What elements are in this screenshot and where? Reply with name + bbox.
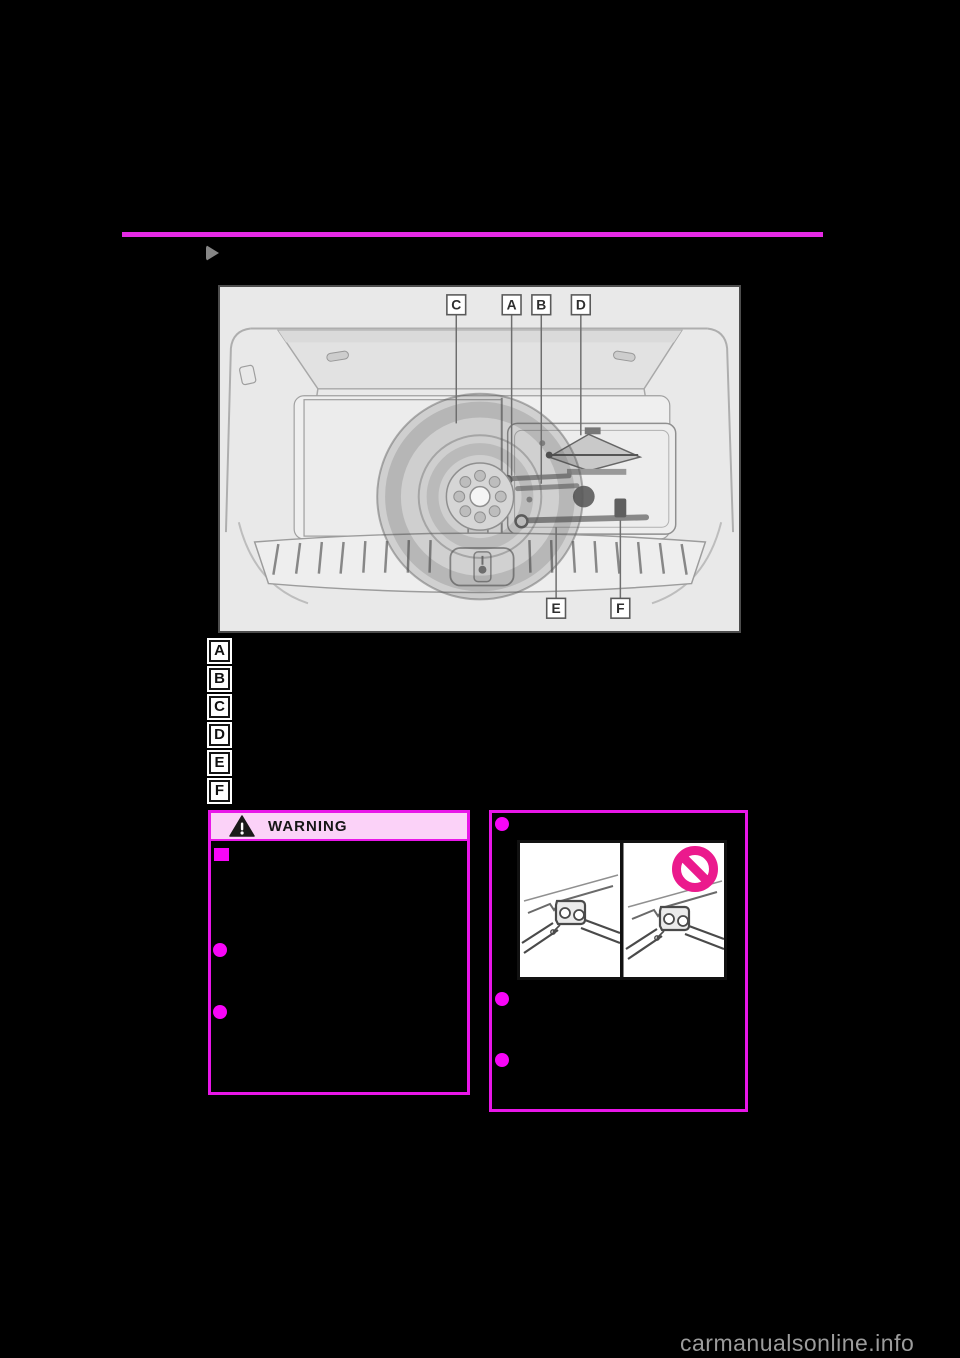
trunk-illustration: C A B D E F [220, 287, 739, 631]
warning-bullet-2 [213, 1005, 227, 1019]
callout-label-b: B [536, 297, 546, 313]
warning-header: WARNING [211, 813, 467, 841]
incorrect-jack-panel [626, 881, 724, 959]
legend-item-e: E [209, 752, 230, 774]
panel-divider [620, 843, 624, 977]
correct-jack-panel [522, 875, 620, 953]
warning-box: WARNING [208, 810, 470, 1095]
info-bullet-2 [495, 992, 509, 1006]
spare-tire [377, 394, 583, 600]
section-square-bullet [214, 848, 229, 861]
manual-page: C A B D E F A B C D E F W [0, 0, 960, 1358]
warning-title: WARNING [268, 818, 348, 835]
legend-item-b: B [209, 668, 230, 690]
callout-label-f: F [616, 600, 624, 616]
legend-item-d: D [209, 724, 230, 746]
callout-label-c: C [451, 297, 461, 313]
legend-item-c: C [209, 696, 230, 718]
warning-triangle-icon [229, 815, 255, 837]
info-bullet-3 [495, 1053, 509, 1067]
legend-item-a: A [209, 640, 230, 662]
info-bullet-1 [495, 817, 509, 831]
section-divider-rule [122, 232, 823, 237]
callout-label-d: D [576, 297, 586, 313]
jack-placement-svg [520, 843, 724, 977]
callout-label-e: E [551, 600, 560, 616]
trunk-tools-diagram: C A B D E F [218, 285, 741, 633]
triangle-right-icon [206, 245, 219, 261]
watermark-text: carmanualsonline.info [680, 1330, 950, 1357]
jack-caution-content [492, 813, 745, 1109]
jack-placement-illustration [517, 840, 727, 980]
warning-content [211, 841, 467, 1090]
callout-label-a: A [507, 297, 517, 313]
warning-bullet-1 [213, 943, 227, 957]
parcel-shelf [278, 330, 681, 388]
legend-item-f: F [209, 780, 230, 802]
jack-caution-box [489, 810, 748, 1112]
prohibition-icon [677, 851, 714, 888]
